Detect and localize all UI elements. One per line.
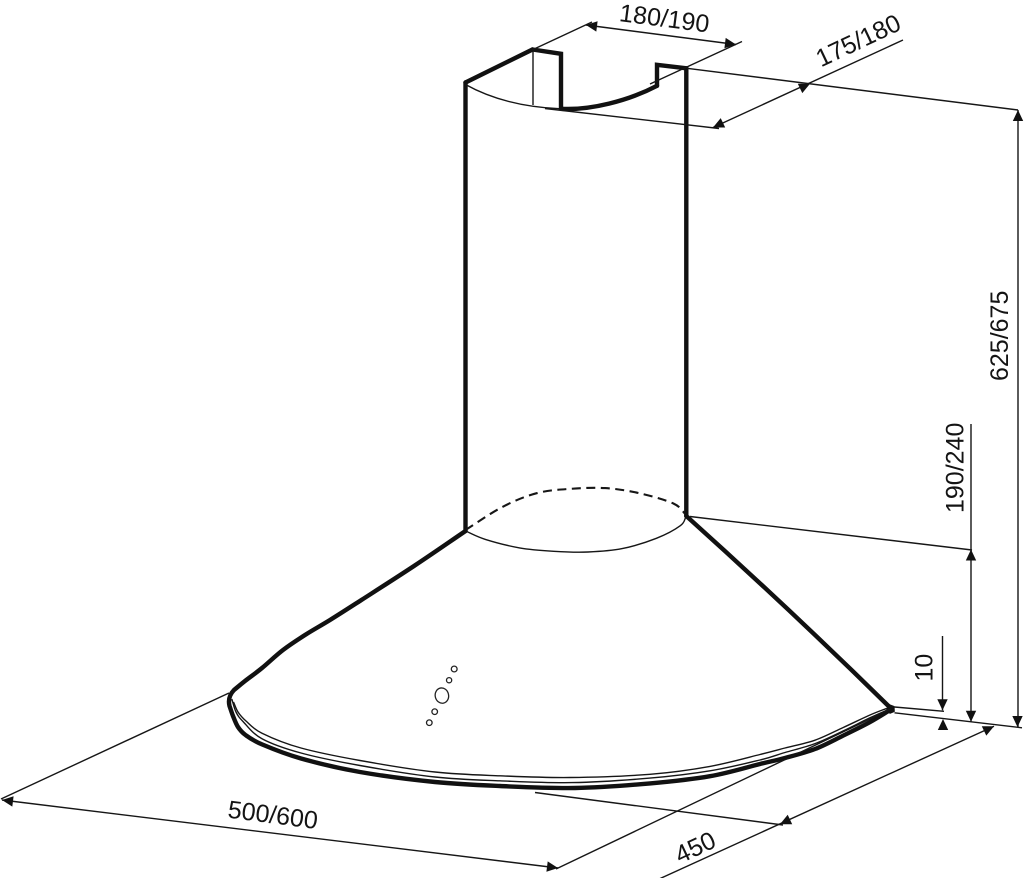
- svg-text:625/675: 625/675: [986, 291, 1014, 381]
- svg-text:190/240: 190/240: [942, 423, 970, 513]
- svg-text:10: 10: [911, 654, 939, 682]
